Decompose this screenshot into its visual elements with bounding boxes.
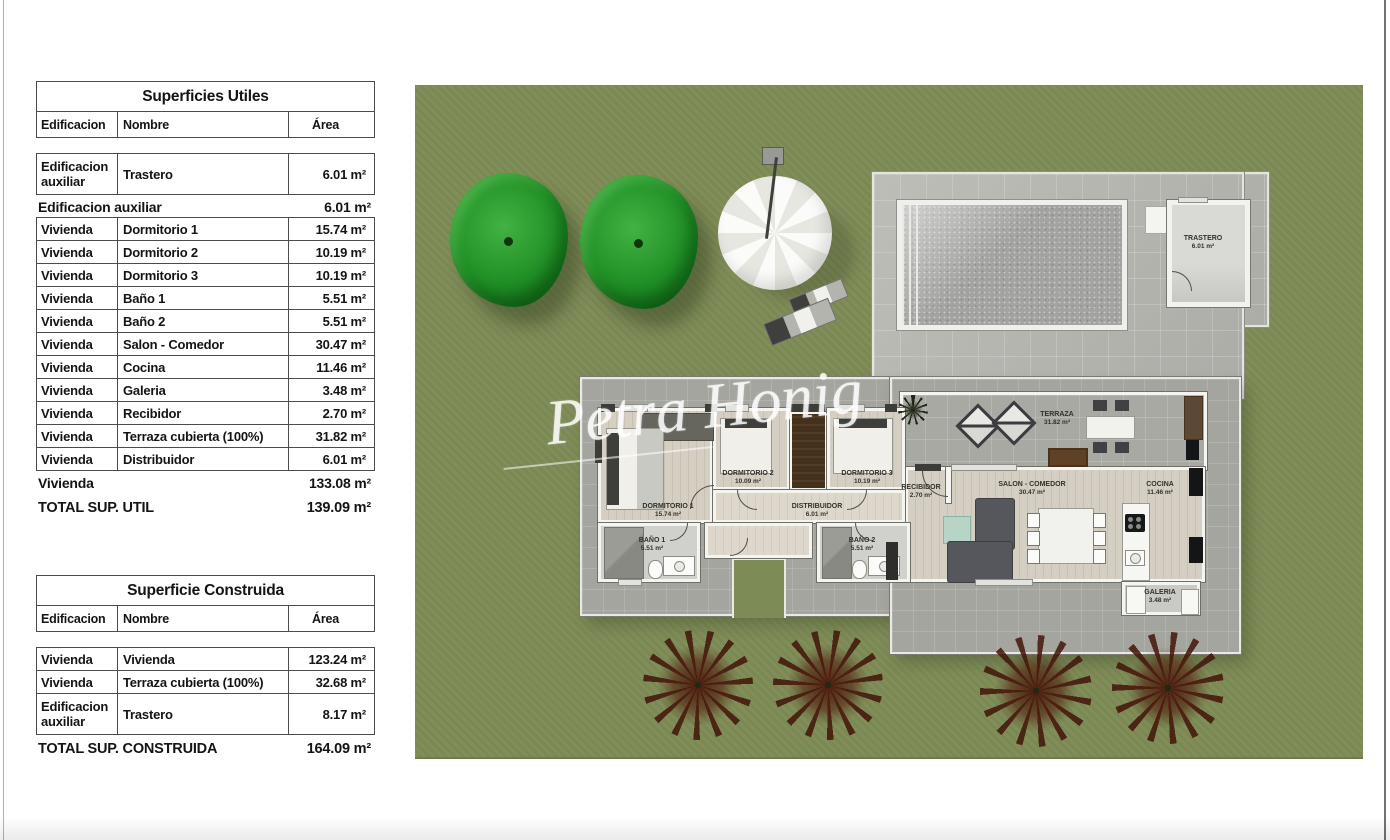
- table-cell: Salon - Comedor: [117, 333, 289, 355]
- dining-chair: [1093, 549, 1106, 564]
- label-dormitorio-1: DORMITORIO 1 15.74 m²: [642, 502, 693, 520]
- total-area: 164.09 m²: [307, 741, 371, 757]
- pool-steps: [902, 205, 922, 325]
- table-title: Superficies Utiles: [36, 81, 375, 112]
- column-header: Área: [289, 112, 374, 137]
- garden-notch: [732, 558, 786, 618]
- table-row: Edificacion auxiliarTrastero6.01 m²: [36, 153, 375, 195]
- washer-galeria: [1126, 586, 1146, 614]
- bbq: [1186, 440, 1199, 460]
- table-row: ViviendaCocina11.46 m²: [36, 355, 375, 379]
- trastero-doormat: [1145, 206, 1169, 234]
- site-plan: DORMITORIO 1 15.74 m² DORMITORIO 2 10.09…: [415, 85, 1363, 759]
- table-row: ViviendaDormitorio 210.19 m²: [36, 240, 375, 264]
- label-cocina: COCINA 11.46 m²: [1146, 480, 1174, 498]
- window-salon-top: [951, 464, 1017, 471]
- table-row: ViviendaRecibidor2.70 m²: [36, 401, 375, 425]
- table-row: ViviendaDormitorio 310.19 m²: [36, 263, 375, 287]
- dining-table: [1038, 508, 1094, 564]
- table-row: ViviendaVivienda123.24 m²: [36, 647, 375, 671]
- page-bottom-shade: [0, 816, 1390, 840]
- table-cell: Baño 1: [117, 287, 289, 309]
- terrace-table-chair: [1115, 442, 1129, 453]
- stove: [1125, 514, 1145, 532]
- table-cell: 30.47 m²: [289, 333, 374, 355]
- label-bano-2: BAÑO 2 5.51 m²: [849, 536, 875, 554]
- dining-chair: [1027, 513, 1040, 528]
- table-cell: Terraza cubierta (100%): [117, 425, 289, 447]
- table-cell: Dormitorio 3: [117, 264, 289, 286]
- table-subtotal-row: Edificacion auxiliar6.01 m²: [36, 195, 375, 218]
- table-subtotal-row: Vivienda133.08 m²: [36, 471, 375, 494]
- table-row: ViviendaBaño 15.51 m²: [36, 286, 375, 310]
- column-header: Nombre: [117, 606, 289, 631]
- label-dormitorio-2: DORMITORIO 2 10.09 m²: [722, 469, 773, 487]
- table-cell: Vivienda: [37, 671, 117, 693]
- table-gap: [36, 138, 375, 154]
- terrace-table-chair: [1093, 442, 1107, 453]
- table-cell: 3.48 m²: [289, 379, 374, 401]
- table-row: ViviendaDormitorio 115.74 m²: [36, 217, 375, 241]
- table-row: ViviendaSalon - Comedor30.47 m²: [36, 332, 375, 356]
- toilet-bano2: [852, 560, 867, 579]
- page-left-border: [3, 0, 4, 840]
- total-area: 139.09 m²: [307, 500, 371, 516]
- table-superficies-utiles: Superficies UtilesEdificacionNombreÁreaE…: [36, 81, 375, 519]
- table-total-row: TOTAL SUP. UTIL139.09 m²: [36, 494, 375, 519]
- table-cell: 6.01 m²: [289, 154, 374, 194]
- column-header: Edificacion: [37, 112, 117, 137]
- table-cell: Trastero: [117, 694, 289, 734]
- table-cell: Vivienda: [37, 218, 117, 240]
- table-cell: Baño 2: [117, 310, 289, 332]
- subtotal-area: 133.08 m²: [309, 475, 371, 491]
- table-cell: 15.74 m²: [289, 218, 374, 240]
- label-distribuidor: DISTRIBUIDOR 6.01 m²: [792, 502, 843, 520]
- wall-pier: [885, 404, 897, 412]
- dining-chair: [1027, 549, 1040, 564]
- table-superficie-construida: Superficie ConstruidaEdificacionNombreÁr…: [36, 575, 375, 760]
- fridge: [1189, 468, 1203, 496]
- subtotal-label: Vivienda: [38, 475, 94, 491]
- table-cell: Distribuidor: [117, 448, 289, 470]
- label-trastero: TRASTERO 6.01 m²: [1184, 234, 1223, 252]
- table-row: ViviendaGaleria3.48 m²: [36, 378, 375, 402]
- green-tree: [580, 175, 698, 309]
- swimming-pool: [897, 200, 1127, 330]
- table-cell: 32.68 m²: [289, 671, 374, 693]
- hall-passage: [705, 523, 812, 558]
- column-header: Edificacion: [37, 606, 117, 631]
- table-cell: Vivienda: [37, 310, 117, 332]
- table-cell: Terraza cubierta (100%): [117, 671, 289, 693]
- window-bano1: [618, 579, 642, 586]
- label-salon-comedor: SALON - COMEDOR 30.47 m²: [998, 480, 1065, 498]
- table-title: Superficie Construida: [36, 575, 375, 606]
- table-gap: [36, 632, 375, 648]
- page-right-border: [1384, 0, 1386, 840]
- parasol: [718, 176, 832, 290]
- table-header-row: EdificacionNombreÁrea: [36, 606, 375, 632]
- table-cell: 31.82 m²: [289, 425, 374, 447]
- red-bush: [643, 630, 753, 740]
- table-cell: Vivienda: [37, 425, 117, 447]
- table-cell: Edificacion auxiliar: [37, 154, 117, 194]
- column-header: Área: [289, 606, 374, 631]
- side-table: [943, 516, 971, 544]
- table-total-row: TOTAL SUP. CONSTRUIDA164.09 m²: [36, 735, 375, 760]
- table-row: ViviendaTerraza cubierta (100%)31.82 m²: [36, 424, 375, 448]
- table-cell: 5.51 m²: [289, 287, 374, 309]
- table-cell: 10.19 m²: [289, 264, 374, 286]
- table-cell: 11.46 m²: [289, 356, 374, 378]
- dining-chair: [1027, 531, 1040, 546]
- label-galeria: GALERIA 3.48 m²: [1144, 588, 1176, 606]
- table-cell: 5.51 m²: [289, 310, 374, 332]
- kitchen-counter-appliance: [1189, 537, 1203, 563]
- trastero-window: [1178, 197, 1208, 203]
- dining-chair: [1093, 531, 1106, 546]
- label-terraza: TERRAZA 31.82 m²: [1040, 410, 1073, 428]
- table-cell: Vivienda: [37, 333, 117, 355]
- green-tree: [450, 173, 568, 307]
- table-cell: Vivienda: [117, 648, 289, 670]
- terrace-rug: [1048, 448, 1088, 467]
- table-cell: Dormitorio 1: [117, 218, 289, 240]
- table-cell: 2.70 m²: [289, 402, 374, 424]
- table-cell: Cocina: [117, 356, 289, 378]
- table-cell: Vivienda: [37, 402, 117, 424]
- toilet-bano1: [648, 560, 663, 579]
- table-cell: 8.17 m²: [289, 694, 374, 734]
- column-header: Nombre: [117, 112, 289, 137]
- total-label: TOTAL SUP. UTIL: [38, 500, 154, 516]
- table-row: ViviendaBaño 25.51 m²: [36, 309, 375, 333]
- table-cell: Trastero: [117, 154, 289, 194]
- potted-plant: [898, 395, 928, 425]
- subtotal-label: Edificacion auxiliar: [38, 199, 162, 215]
- table-cell: Vivienda: [37, 264, 117, 286]
- table-cell: 10.19 m²: [289, 241, 374, 263]
- table-cell: Galeria: [117, 379, 289, 401]
- terrace-table-chair: [1115, 400, 1129, 411]
- media-wall: [886, 542, 898, 580]
- wall-pier: [915, 464, 941, 471]
- table-cell: 6.01 m²: [289, 448, 374, 470]
- shower-bano2: [822, 527, 852, 579]
- window-salon-bottom: [975, 579, 1033, 586]
- table-cell: Edificacion auxiliar: [37, 694, 117, 734]
- table-header-row: EdificacionNombreÁrea: [36, 112, 375, 138]
- terrace-table-chair: [1093, 400, 1107, 411]
- sink-bano1: [663, 556, 695, 576]
- total-label: TOTAL SUP. CONSTRUIDA: [38, 741, 217, 757]
- table-cell: Vivienda: [37, 379, 117, 401]
- kitchen-sink: [1125, 550, 1145, 566]
- table-cell: Dormitorio 2: [117, 241, 289, 263]
- table-cell: Vivienda: [37, 648, 117, 670]
- label-dormitorio-3: DORMITORIO 3 10.19 m²: [841, 469, 892, 487]
- outdoor-kitchen: [1184, 396, 1203, 440]
- dining-chair: [1093, 513, 1106, 528]
- table-cell: Vivienda: [37, 356, 117, 378]
- table-cell: Recibidor: [117, 402, 289, 424]
- table-cell: 123.24 m²: [289, 648, 374, 670]
- dryer-galeria: [1181, 589, 1199, 615]
- table-cell: Vivienda: [37, 287, 117, 309]
- parasol-base: [762, 147, 784, 165]
- label-recibidor: RECIBIDOR 2.70 m²: [901, 483, 940, 501]
- terrace-table: [1086, 416, 1135, 439]
- table-row: Edificacion auxiliarTrastero8.17 m²: [36, 693, 375, 735]
- table-row: ViviendaTerraza cubierta (100%)32.68 m²: [36, 670, 375, 694]
- table-cell: Vivienda: [37, 241, 117, 263]
- label-bano-1: BAÑO 1 5.51 m²: [639, 536, 665, 554]
- table-cell: Vivienda: [37, 448, 117, 470]
- table-row: ViviendaDistribuidor6.01 m²: [36, 447, 375, 471]
- sofa-horizontal: [947, 541, 1013, 583]
- subtotal-area: 6.01 m²: [324, 199, 371, 215]
